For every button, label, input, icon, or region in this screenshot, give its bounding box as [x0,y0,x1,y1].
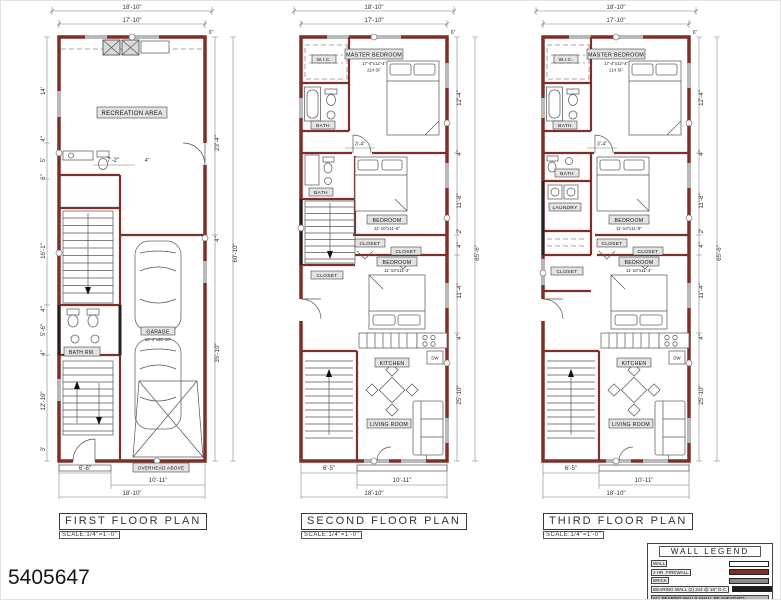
laundry-label: LAUNDRY [553,205,578,211]
room-label-bath2: BATH [309,188,333,196]
dim-label: 10'-11" [149,477,168,484]
dim-label: 6'-6" [79,465,91,472]
dim-label: 6" [451,30,456,36]
door-opening [540,299,546,321]
brick-swatch [729,578,769,584]
room-label-closet2: CLOSET [633,247,663,255]
dim-label: 11'-8" [456,193,463,208]
dim-label: 12'-4" [698,90,705,106]
plan-scale: SCALE:1/4"=1'-0" [543,531,604,539]
door-opening [594,150,614,156]
legend-row-bearing: BEARING WALL (2) 2x4 @ 16" O.C. [651,586,769,593]
balcony-strip [357,465,447,471]
room-label-closet-hall: CLOSET [551,267,583,275]
wall-legend: WALL LEGEND WALL 2 HR. FIREWALL BRICK BE… [647,543,773,600]
dim-label: 4" [698,334,705,340]
bedroom-label: BEDROOM [615,218,644,224]
legend-label: 2 HR. FIREWALL [651,569,691,576]
plan-title: FIRST FLOOR PLAN [59,513,207,530]
room-label-wic: W.I.C. [312,55,336,63]
room-label-living: LIVING ROOM [609,419,653,428]
third-floor-plan-drawing: MASTER BEDROOM 17'-4"x12'-4" 214 SF W.I.… [491,3,741,508]
closet-label: CLOSET [638,249,659,255]
dim-label: 11'-4" [698,283,705,298]
dim-label: 6" [209,30,214,36]
dim-label: 4" [214,236,221,242]
bedroom-size-label: 11'-10"x11'-8" [616,226,642,231]
closet-shelves [547,239,587,246]
legend-row-brick: BRICK [651,577,769,584]
window-tags [56,34,208,464]
room-label-bedroom2: BEDROOM 11'-10"x11'-4" [619,257,659,273]
dim-label: 4" [40,350,47,356]
bathroom2-fixtures [305,155,334,185]
bedroom-size-label: 11'-10"x11'-8" [374,226,400,231]
dim-label: 25'-10" [456,385,463,404]
closet-label: CLOSET [317,273,338,279]
dim-label: 6'-5" [565,465,577,472]
room-label-bath1: BATH [553,121,577,129]
legend-title: WALL LEGEND [659,546,761,557]
bed-icon [629,61,681,135]
laundry-appliances [548,185,578,199]
dim-label: 60'-10" [232,243,239,262]
recreation-area-label: RECREATION AREA [101,111,162,117]
dim-label: 17'-10" [606,17,625,24]
room-label-closet2: CLOSET [391,247,421,255]
legend-row-wall: WALL [651,560,769,567]
closet-label: CLOSET [602,241,623,247]
master-bedroom-label: MASTER BEDROOM [346,53,402,59]
master-area-label: 214 SF [609,68,623,73]
garage-label: GARAGE [146,330,170,336]
dim-label: 6'-5" [323,465,335,472]
dim-label: 12'-4" [456,90,463,106]
door-swing-arc [73,439,95,461]
sheet-number: 5405647 [8,566,90,590]
legend-note: ALL BEARING WALLS SHALL BE SHEATHED [651,595,769,600]
legend-row-firewall: 2 HR. FIREWALL [651,569,769,576]
dim-label: 2' [456,229,463,234]
door-swing-arc [183,143,205,165]
second-floor-titleblock: SECOND FLOOR PLAN SCALE:1/4"=1'-0" [301,511,467,539]
plan-scale: SCALE:1/4"=1'-0" [301,531,362,539]
wic-label: W.I.C. [559,57,574,63]
room-label-bath: BATH RM. [64,347,100,356]
dim-label: 4" [698,150,705,156]
dim-label: 3'-4" [355,142,365,148]
dining-table-icon [608,364,660,416]
dim-label: 12'-10" [40,391,47,410]
dim-label: 2' [698,229,705,234]
bath-label: BATH [314,190,328,196]
third-floor-titleblock: THIRD FLOOR PLAN SCALE:1/4"=1'-0" [543,511,693,539]
closet-label: CLOSET [396,249,417,255]
stairs-lower [305,361,353,438]
dim-label: 11'-4" [456,283,463,298]
stove-icon [103,40,169,55]
dim-label: 4" [145,158,150,164]
dim-label: 11'-8" [698,193,705,208]
overhead-above-label: OVERHEAD ABOVE [138,466,185,471]
dim-label: 10'-11" [393,477,412,484]
door-opening [352,150,372,156]
room-label-bedroom1: BEDROOM 11'-10"x11'-8" [609,215,649,231]
room-label-kitchen: KITCHEN [375,358,409,367]
plan-scale: SCALE:1/4"=1'-0" [59,531,120,539]
door-opening [73,458,95,464]
stairs-lower [63,361,113,435]
legend-label: BEARING WALL (2) 2x4 @ 16" O.C. [651,586,729,593]
dim-label: 16'-1" [40,243,47,259]
kitchen-label: KITCHEN [380,361,405,367]
bedroom-label: BEDROOM [383,260,412,266]
dim-label: 3' [40,447,47,452]
bed-icon [355,157,407,211]
firewall-swatch [729,569,769,575]
balcony-strip [599,465,689,471]
master-area-label: 214 SF [367,68,381,73]
dim-label: 18'-10" [122,490,141,497]
dim-label: 18'-10" [606,490,625,497]
dim-label: 18'-10" [364,490,383,497]
dim-label: 4" [40,306,47,312]
master-bedroom-label: MASTER BEDROOM [588,53,644,59]
dim-label: 4" [698,242,705,248]
room-label-living: LIVING ROOM [367,419,411,428]
wall-swatch [729,561,769,567]
bathroom2-fixtures [67,309,99,343]
dim-label: 4" [456,242,463,248]
room-label-recreation: RECREATION AREA [97,107,167,118]
stairs-lower [547,361,595,438]
stairs-upper [305,201,355,263]
dim-label: 4" [40,136,47,142]
master-size-label: 17'-4"x12'-4" [362,61,387,66]
dim-label: 3'-4" [597,142,607,148]
dim-label: 6" [40,174,47,180]
master-size-label: 17'-4"x12'-4" [604,61,629,66]
first-floor-titleblock: FIRST FLOOR PLAN SCALE:1/4"=1'-0" [59,511,207,539]
dim-label: 17'-10" [122,17,141,24]
dim-label: 65'-6" [716,245,723,261]
second-floor-plan: MASTER BEDROOM 17'-4"x12'-4" 214 SF W.I.… [249,3,499,563]
bed-icon [611,275,667,329]
bedroom-size-label: 11'-10"x11'-4" [626,268,652,273]
window-markings [59,37,205,401]
bed-icon [597,157,649,211]
closet-label: CLOSET [360,241,381,247]
dim-label: 23'-4" [214,135,221,151]
dw-label: DW [431,356,439,361]
bed-icon [387,61,439,135]
stairs-upper [63,211,113,303]
room-label-bedroom2: BEDROOM 11'-10"x11'-4" [377,257,417,273]
living-room-label: LIVING ROOM [370,422,408,428]
living-room-label: LIVING ROOM [612,422,650,428]
dim-label: 7'-2" [107,157,119,164]
wic-label: W.I.C. [317,57,332,63]
bedroom-label: BEDROOM [373,218,402,224]
room-label-bath2: BATH [555,169,579,177]
dim-label: 18'-10" [606,4,625,11]
first-floor-plan: RECREATION AREA BATH RM. GARAGE 10'-4"x3… [7,3,257,563]
room-label-laundry: LAUNDRY [549,203,581,211]
room-label-wic: W.I.C. [554,55,578,63]
dim-label: 35'-10" [214,343,221,362]
bedroom-size-label: 11'-10"x11'-4" [384,268,410,273]
room-label-bath1: BATH [311,121,335,129]
bathroom-fixtures [305,87,338,121]
room-label-garage: GARAGE 10'-4"x35'-10" [141,327,175,342]
dim-label: 18'-10" [364,4,383,11]
bath-label: BATH [560,171,574,177]
room-label-bedroom1: BEDROOM 11'-10"x11'-8" [367,215,407,231]
dim-label: 5' [40,158,47,163]
plan-title: SECOND FLOOR PLAN [301,513,467,530]
sofa-icon [413,401,443,455]
room-label-closet1: CLOSET [597,239,627,247]
bath-label: BATH [316,123,330,129]
bath-label: BATH [558,123,572,129]
dining-table-icon [366,364,418,416]
dim-label: 18'-10" [122,4,141,11]
label-overhead-above: OVERHEAD ABOVE [133,463,189,472]
dw-label: DW [673,356,681,361]
dim-label: 6" [693,30,698,36]
bathroom-fixtures [63,151,109,170]
bearing-swatch [732,586,772,592]
plan-title: THIRD FLOOR PLAN [543,513,693,530]
dim-label: 65'-6" [474,245,481,261]
legend-label: BRICK [651,577,669,584]
bedroom-label: BEDROOM [625,260,654,266]
dim-label: 4" [456,150,463,156]
bath-room-label: BATH RM. [69,350,95,356]
sofa-icon [655,401,685,455]
closet-label: CLOSET [557,269,578,275]
dim-label: 25'-10" [698,385,705,404]
car-icon [135,241,181,331]
drawing-sheet: RECREATION AREA BATH RM. GARAGE 10'-4"x3… [0,0,781,600]
bathroom-fixtures [547,87,580,121]
dim-label: 4" [456,334,463,340]
garage-size-label: 10'-4"x35'-10" [145,337,172,342]
dim-label: 17'-10" [364,17,383,24]
room-label-kitchen: KITCHEN [617,358,651,367]
kitchen-label: KITCHEN [622,361,647,367]
door-opening [298,299,304,321]
dim-label: 10'-11" [635,477,654,484]
room-label-closet1: CLOSET [355,239,385,247]
dim-label: 5'-6" [40,324,47,336]
room-label-closet3: CLOSET [311,271,343,279]
first-floor-plan-drawing: RECREATION AREA BATH RM. GARAGE 10'-4"x3… [7,3,257,508]
dim-label: 14' [40,87,47,95]
bed-icon [369,275,425,329]
third-floor-plan: MASTER BEDROOM 17'-4"x12'-4" 214 SF W.I.… [491,3,741,563]
second-floor-plan-drawing: MASTER BEDROOM 17'-4"x12'-4" 214 SF W.I.… [249,3,499,508]
legend-label: WALL [651,560,667,567]
